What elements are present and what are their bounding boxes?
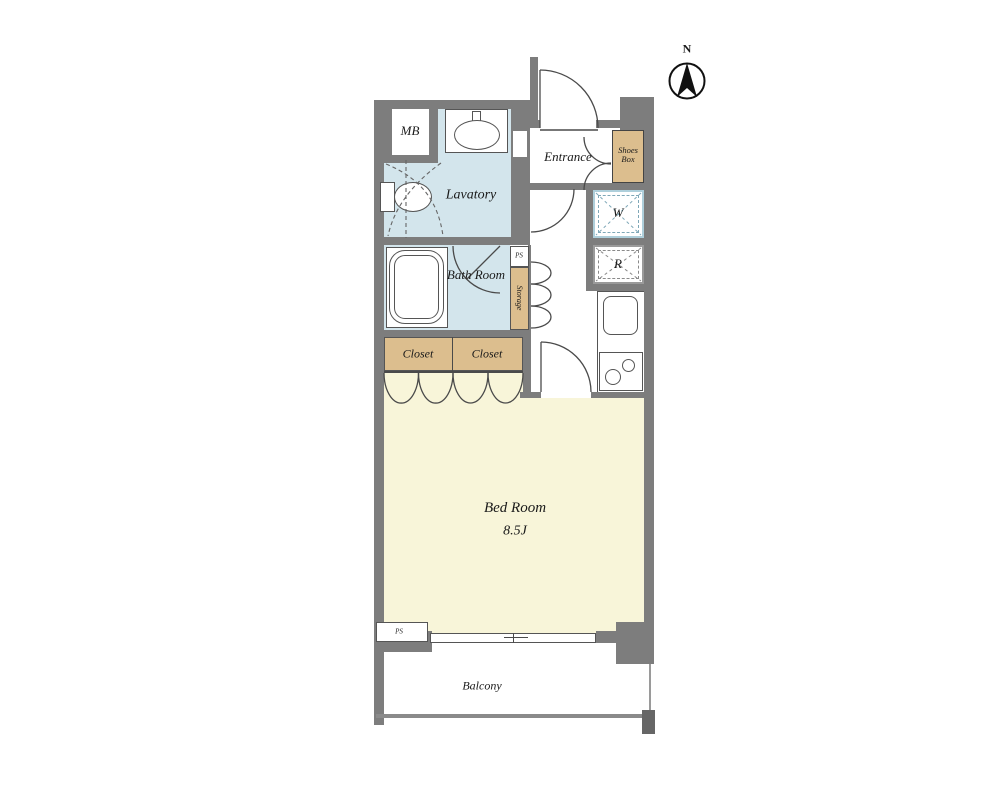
label-bed-room: Bed Room	[484, 501, 546, 517]
floor-plan: N MB Lavatory Bath Room Entrance Shoes B…	[0, 0, 999, 801]
wall-door-frame-left	[530, 57, 538, 128]
wall-bedroom-top-b	[591, 392, 654, 398]
closet-bottom-line	[384, 371, 523, 373]
label-lavatory: Lavatory	[446, 189, 497, 204]
wall-window-stub-right	[596, 631, 618, 643]
kitchen-sink-icon	[603, 296, 638, 335]
entrance-threshold	[540, 129, 598, 131]
label-shoes-box: Shoes Box	[614, 146, 642, 164]
label-balcony: Balcony	[462, 680, 501, 693]
storage-bifold-arc-1	[531, 262, 551, 284]
label-closet-2: Closet	[472, 348, 503, 361]
closet-divider	[452, 337, 453, 371]
wall-fridge-kitchen	[589, 284, 654, 291]
label-bath-room: Bath Room	[447, 268, 505, 282]
balcony-right-edge	[649, 664, 651, 714]
wall-washer-fridge	[589, 238, 654, 245]
bedroom-door-arc	[541, 342, 591, 392]
bathtub-inner-line	[394, 255, 439, 319]
sink-icon	[454, 120, 500, 150]
wall-bedroom-top-a	[520, 392, 541, 398]
toilet-tank-icon	[380, 182, 395, 212]
storage-bifold-arc-3	[531, 306, 551, 328]
label-fridge: R	[614, 257, 622, 271]
wall-entrance-top-right	[596, 120, 622, 128]
entrance-door-arc	[540, 70, 598, 128]
wall-balcony-block	[616, 622, 654, 664]
window-tick	[504, 637, 528, 638]
label-bed-room-size: 8.5J	[503, 525, 527, 540]
compass-icon	[665, 57, 709, 103]
balcony-railing	[376, 714, 650, 718]
label-storage: Storage	[515, 286, 523, 311]
wall-closet-right	[523, 337, 530, 398]
label-entrance: Entrance	[544, 150, 592, 164]
label-ps-upper: PS	[515, 252, 523, 259]
hallway-door-arc	[531, 189, 574, 232]
wall-right-exterior	[644, 130, 654, 632]
label-mb: MB	[401, 124, 420, 138]
north-label: N	[683, 43, 692, 56]
balcony-corner-block	[642, 710, 655, 734]
wall-niche	[513, 131, 527, 157]
stove-burner-small	[622, 359, 635, 372]
window-center-line	[513, 633, 514, 643]
stove-burner-large	[605, 369, 621, 385]
wall-entrance-top-left	[511, 120, 540, 128]
wall-below-ps	[374, 642, 432, 652]
wall-lavatory-bath	[374, 237, 530, 245]
storage-bifold-arc-2	[531, 284, 551, 306]
label-closet-1: Closet	[403, 348, 434, 361]
wall-below-entrance	[528, 183, 654, 190]
label-washer: W	[613, 206, 624, 220]
wall-bath-closet	[374, 330, 530, 337]
wall-top-right-block	[620, 97, 654, 130]
toilet-icon	[394, 182, 432, 212]
label-ps-lower: PS	[395, 628, 403, 635]
